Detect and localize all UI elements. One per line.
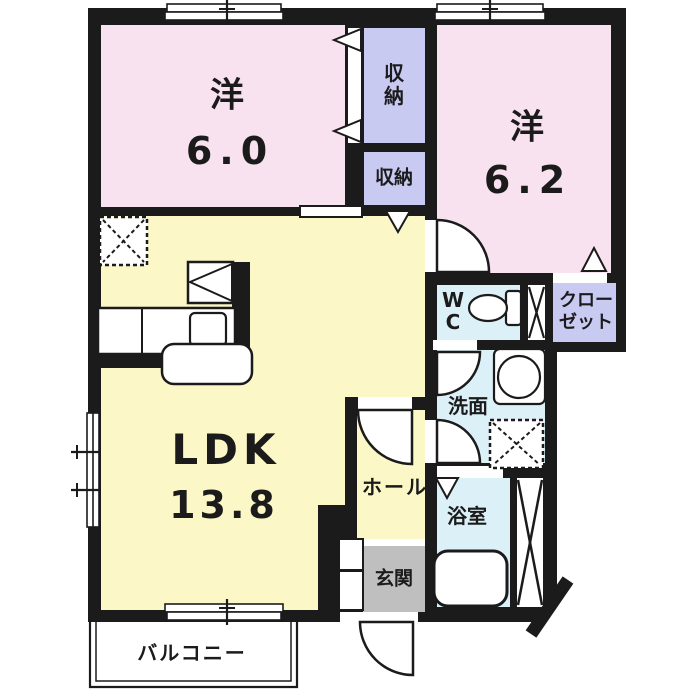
label-closet: クローゼット bbox=[555, 290, 617, 334]
label-washroom: 洗面 bbox=[448, 395, 488, 417]
label-hall: ホール bbox=[362, 476, 428, 498]
label-ldk-name: LDK bbox=[171, 427, 280, 473]
entrance-step bbox=[363, 539, 425, 546]
room-bathroom bbox=[437, 478, 510, 607]
storage-opening bbox=[348, 28, 361, 143]
label-balcony: バルコニー bbox=[137, 642, 247, 664]
pipe-space-lower bbox=[517, 478, 543, 607]
label-entrance: 玄関 bbox=[375, 569, 413, 590]
room-ldk-main bbox=[101, 216, 425, 397]
label-western-6-0-name: 洋 bbox=[210, 77, 244, 114]
pipe-space-upper bbox=[528, 285, 545, 340]
label-western-6-2-size: 6.2 bbox=[484, 160, 572, 202]
label-storage-lower: 収納 bbox=[375, 168, 413, 189]
label-bathroom: 浴室 bbox=[447, 505, 487, 527]
door-arc-icon-entrance bbox=[360, 622, 413, 675]
room-western-6-2 bbox=[437, 25, 611, 273]
floorplan-canvas: 洋 6.0 洋 6.2 LDK 13.8 収納 収納 WC クローゼット 洗面 … bbox=[0, 0, 700, 700]
label-western-6-0-size: 6.0 bbox=[186, 131, 274, 173]
label-wc: WC bbox=[442, 289, 464, 333]
room-western-6-0 bbox=[101, 25, 345, 207]
shoe-cabinet-upper bbox=[338, 538, 364, 571]
label-storage-upper: 収納 bbox=[382, 62, 406, 108]
label-ldk-size: 13.8 bbox=[169, 485, 279, 527]
shoe-cabinet-lower bbox=[338, 570, 364, 611]
label-western-6-2-name: 洋 bbox=[510, 109, 544, 146]
